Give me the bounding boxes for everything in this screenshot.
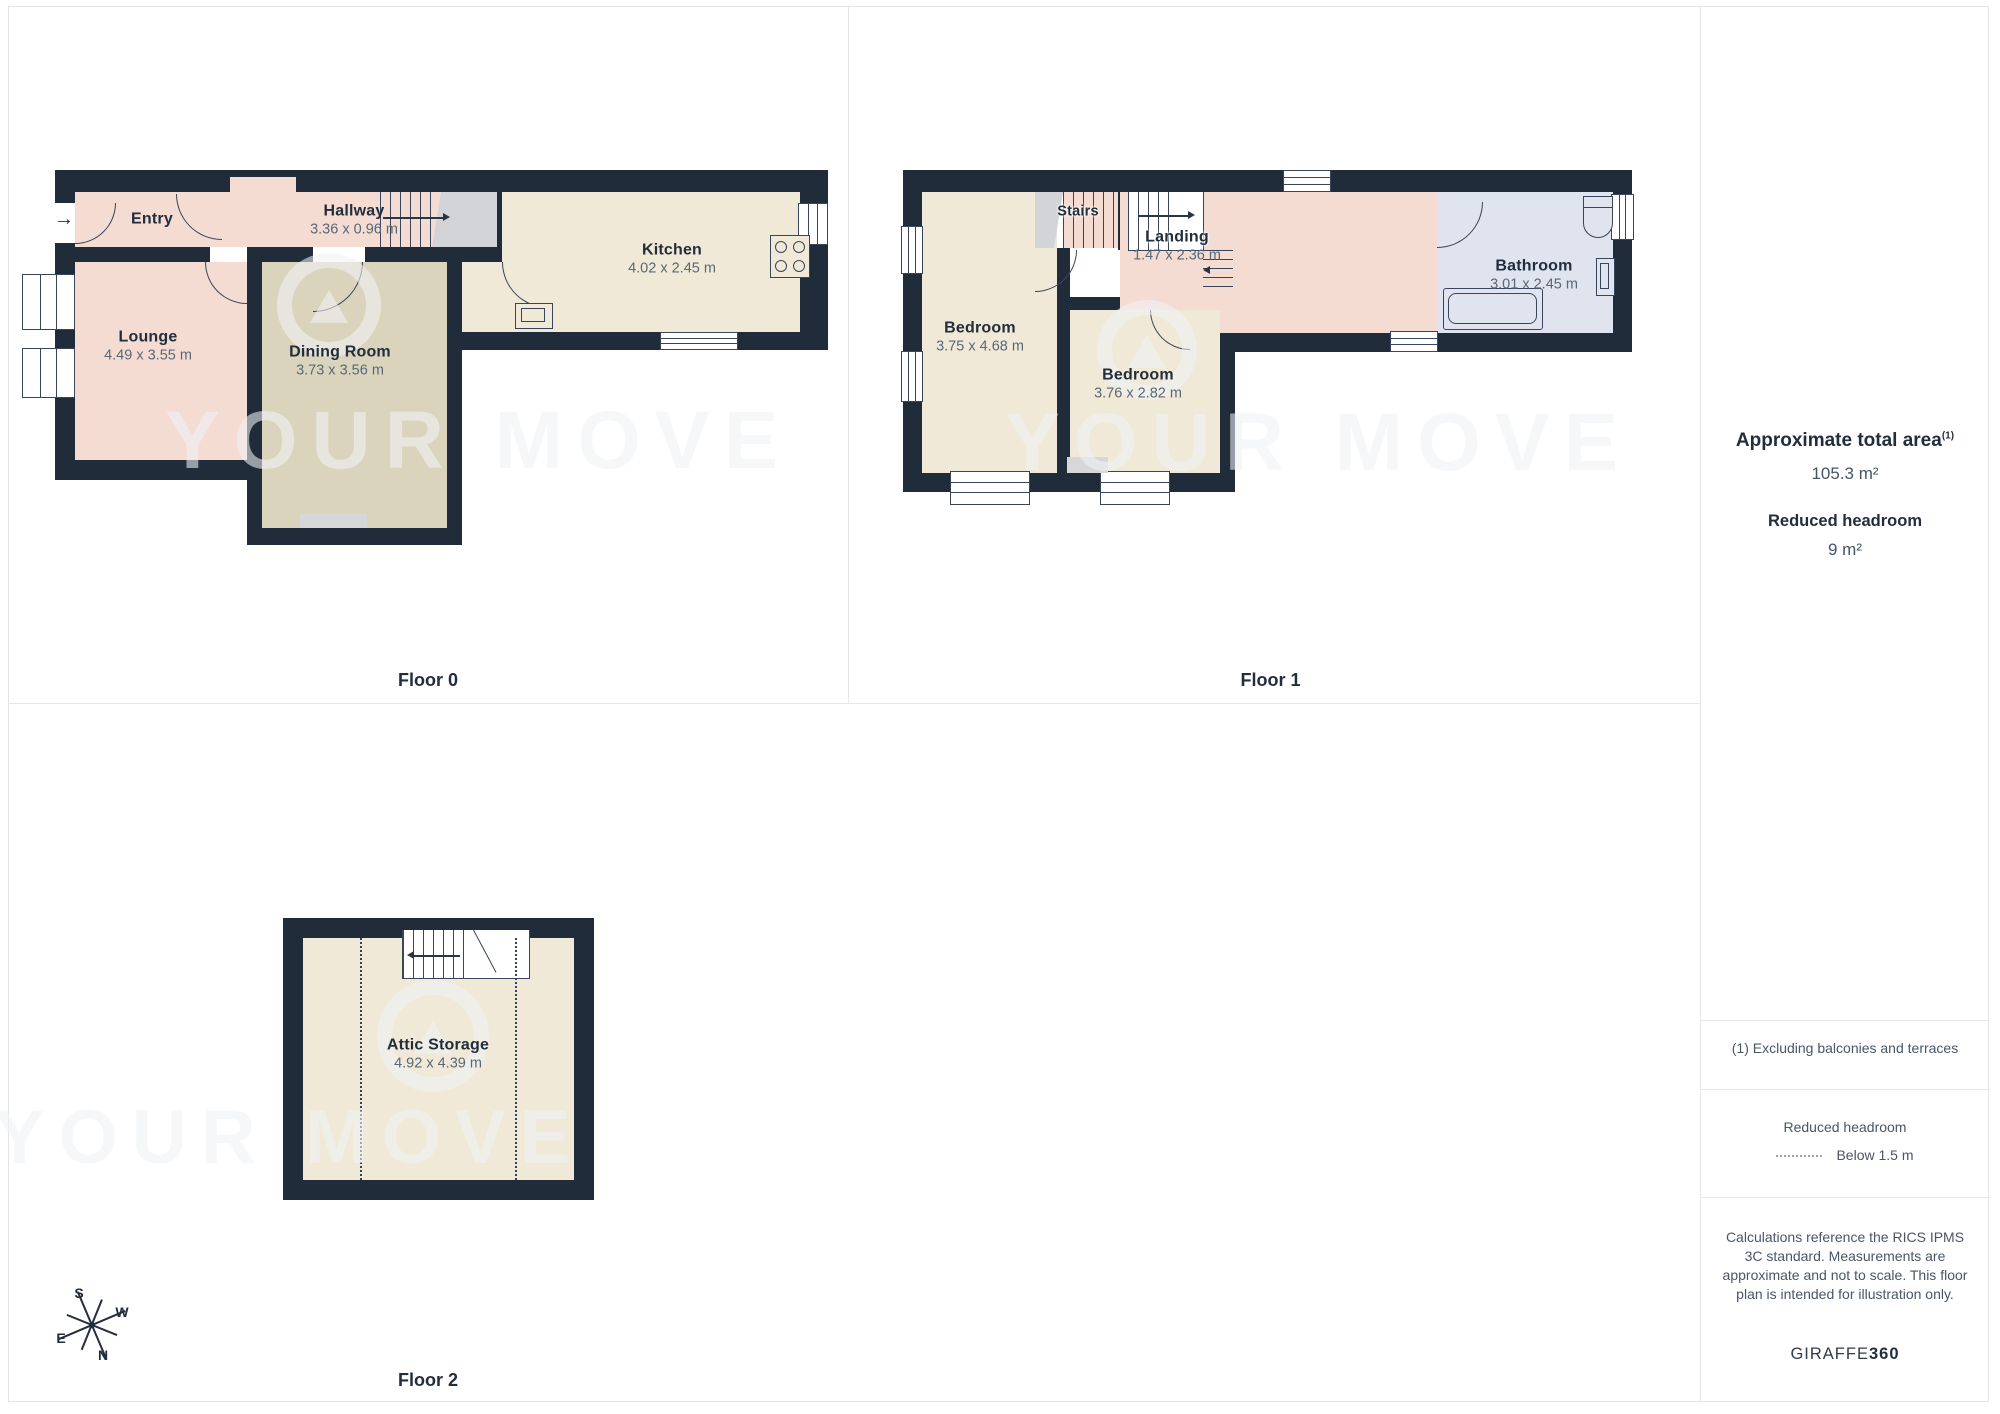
room-name: Lounge bbox=[104, 328, 192, 347]
hearth-mat bbox=[300, 514, 367, 528]
floor-0-label: Floor 0 bbox=[8, 670, 848, 691]
compass-south-label: S bbox=[74, 1285, 83, 1301]
compass-rose: S W E N bbox=[56, 1289, 128, 1361]
room-name: Entry bbox=[131, 210, 173, 229]
sidebar-divider-2 bbox=[1700, 1089, 1990, 1090]
arrowhead-icon bbox=[1203, 266, 1210, 274]
giraffe360-logo-watermark bbox=[277, 253, 381, 357]
room-label-stairs: Stairs bbox=[1057, 203, 1099, 222]
wall bbox=[55, 243, 75, 262]
room-name: Attic Storage bbox=[387, 1036, 489, 1055]
window bbox=[1390, 331, 1438, 352]
window bbox=[22, 348, 75, 398]
reduced-headroom-value: 9 m² bbox=[1700, 540, 1990, 560]
sink-icon bbox=[1596, 258, 1615, 296]
floor-1-label: Floor 1 bbox=[848, 670, 1693, 691]
window bbox=[22, 274, 75, 330]
window bbox=[660, 332, 738, 350]
compass-north-label: N bbox=[98, 1347, 108, 1363]
watermark-text: YOUR MOVE bbox=[0, 1094, 848, 1181]
stove-icon bbox=[770, 235, 810, 278]
window bbox=[901, 226, 923, 274]
giraffe360-brand: GIRAFFE360 bbox=[1700, 1345, 1990, 1364]
room-label-dining: Dining Room 3.73 x 3.56 m bbox=[289, 343, 391, 380]
legend-title: Reduced headroom bbox=[1700, 1119, 1990, 1135]
brand-suffix: 360 bbox=[1869, 1345, 1900, 1363]
wall bbox=[283, 1180, 594, 1200]
compass-west-label: W bbox=[115, 1304, 128, 1320]
wall bbox=[55, 170, 828, 192]
sidebar-divider-1 bbox=[1700, 1020, 1990, 1021]
room-label-bedroom-2: Bedroom 3.76 x 2.82 m bbox=[1094, 366, 1182, 403]
footnote-marker: (1) bbox=[1942, 431, 1954, 442]
room-dims: 4.92 x 4.39 m bbox=[387, 1055, 489, 1073]
wall bbox=[903, 192, 922, 228]
room-name: Bedroom bbox=[936, 319, 1024, 338]
arrowhead-icon bbox=[443, 213, 450, 221]
room-dims: 3.75 x 4.68 m bbox=[936, 338, 1024, 356]
room-dims: 4.49 x 3.55 m bbox=[104, 347, 192, 365]
disclaimer-text: Calculations reference the RICS IPMS 3C … bbox=[1716, 1228, 1974, 1304]
panel-divider-horizontal bbox=[8, 703, 1700, 704]
room-dims: 1.47 x 2.36 m bbox=[1133, 247, 1221, 265]
sidebar-left-border bbox=[1700, 6, 1701, 1402]
room-label-kitchen: Kitchen 4.02 x 2.45 m bbox=[628, 241, 716, 278]
room-name: Stairs bbox=[1057, 203, 1099, 222]
wall bbox=[75, 247, 210, 262]
legend-item-label: Below 1.5 m bbox=[1836, 1147, 1913, 1163]
room-dims: 3.76 x 2.82 m bbox=[1094, 385, 1182, 403]
window bbox=[1283, 170, 1331, 192]
room-kitchen bbox=[462, 262, 502, 332]
room-name: Bedroom bbox=[1094, 366, 1182, 385]
stairs-direction-arrow bbox=[1138, 215, 1190, 217]
wall bbox=[365, 247, 482, 262]
total-area-value: 105.3 m² bbox=[1700, 464, 1990, 484]
room-dims: 3.36 x 0.96 m bbox=[310, 221, 398, 239]
panel-divider-vertical bbox=[848, 6, 849, 703]
watermark-text: YOUR MOVE bbox=[165, 394, 848, 488]
compass-center bbox=[89, 1322, 95, 1328]
wall bbox=[247, 528, 462, 545]
room-label-landing: Landing 1.47 x 2.36 m bbox=[1133, 228, 1221, 265]
room-dims: 3.73 x 3.56 m bbox=[289, 362, 391, 380]
room-dims: 3.01 x 2.45 m bbox=[1490, 276, 1578, 294]
sink-icon bbox=[515, 303, 553, 329]
wall bbox=[903, 272, 922, 355]
hallway-recess bbox=[230, 177, 296, 192]
room-name: Dining Room bbox=[289, 343, 391, 362]
room-name: Bathroom bbox=[1490, 257, 1578, 276]
floorplan-page: → Entry Hallway 3.36 x 0.96 m Lounge 4.4… bbox=[0, 0, 2000, 1414]
bathtub-icon bbox=[1443, 288, 1543, 330]
window bbox=[1611, 194, 1634, 240]
room-label-bathroom: Bathroom 3.01 x 2.45 m bbox=[1490, 257, 1578, 294]
wall bbox=[462, 332, 828, 350]
room-label-entry: Entry bbox=[131, 210, 173, 229]
stairs-direction-arrow bbox=[412, 955, 460, 957]
toilet-icon bbox=[1583, 196, 1613, 238]
arrowhead-icon bbox=[407, 951, 414, 959]
legend-row: Below 1.5 m bbox=[1700, 1147, 1990, 1163]
wall bbox=[55, 192, 75, 203]
arrowhead-icon bbox=[1188, 211, 1195, 219]
floor-2-label: Floor 2 bbox=[8, 1370, 848, 1391]
room-label-bedroom-1: Bedroom 3.75 x 4.68 m bbox=[936, 319, 1024, 356]
brand-name: GIRAFFE bbox=[1790, 1345, 1869, 1363]
area-footnote: (1) Excluding balconies and terraces bbox=[1700, 1040, 1990, 1056]
compass-east-label: E bbox=[56, 1330, 65, 1346]
reduced-headroom-heading: Reduced headroom bbox=[1700, 512, 1990, 531]
room-label-attic: Attic Storage 4.92 x 4.39 m bbox=[387, 1036, 489, 1073]
dotted-line-swatch bbox=[1776, 1155, 1822, 1157]
room-name: Kitchen bbox=[628, 241, 716, 260]
room-name: Hallway bbox=[310, 202, 398, 221]
room-label-lounge: Lounge 4.49 x 3.55 m bbox=[104, 328, 192, 365]
room-label-hallway: Hallway 3.36 x 0.96 m bbox=[310, 202, 398, 239]
total-area-heading: Approximate total area(1) bbox=[1700, 430, 1990, 452]
watermark-text: YOUR MOVE bbox=[1005, 396, 1700, 490]
room-name: Landing bbox=[1133, 228, 1221, 247]
window bbox=[901, 351, 923, 402]
total-area-label: Approximate total area bbox=[1736, 430, 1942, 451]
stairs-landing-turn bbox=[432, 192, 497, 247]
sidebar-divider-3 bbox=[1700, 1197, 1990, 1198]
entry-arrow-icon: → bbox=[54, 209, 74, 229]
wall bbox=[903, 170, 1632, 192]
room-dims: 4.02 x 2.45 m bbox=[628, 260, 716, 278]
